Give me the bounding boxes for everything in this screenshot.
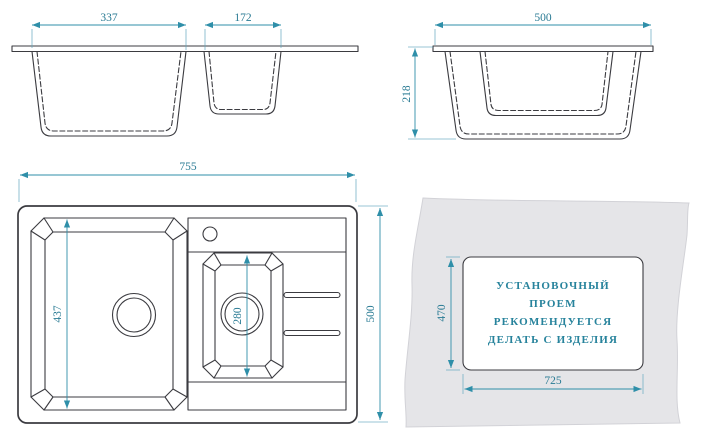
drainboard-groove-bottom	[284, 331, 340, 336]
drawing-canvas: 337 172 500 218	[0, 0, 701, 441]
shallow-bowl-profile	[480, 52, 613, 116]
large-bowl-inner-profile	[37, 52, 181, 132]
dim-sink-depth: 218	[401, 47, 456, 139]
large-drain-hole	[113, 294, 156, 337]
dim-sink-depth-value: 218	[401, 85, 413, 103]
dim-overall-width-value: 500	[365, 305, 377, 323]
dim-bowl1-width: 337	[32, 12, 186, 50]
dim-overall-length-value: 755	[179, 161, 197, 173]
note-line-1: УСТАНОВОЧНЫЙ	[496, 280, 610, 292]
dim-large-bowl-length: 437	[52, 220, 67, 409]
right-section-frame	[188, 218, 346, 410]
note-line-2: ПРОЕМ	[529, 298, 577, 310]
dim-opening-height-value: 470	[436, 304, 448, 322]
installation-opening	[463, 257, 643, 370]
sink-drawing-sheet: 337 172 500 218	[0, 0, 701, 441]
dim-sink-width-value: 500	[534, 12, 552, 24]
cutout-view: УСТАНОВОЧНЫЙ ПРОЕМ РЕКОМЕНДУЕТСЯ ДЕЛАТЬ …	[405, 198, 689, 427]
small-bowl-profile	[204, 52, 281, 115]
large-bowl-profile	[32, 52, 186, 137]
dim-bowl2-width-value: 172	[234, 12, 252, 24]
dim-overall-width: 500	[358, 206, 388, 422]
dim-bowl2-width: 172	[205, 12, 281, 50]
front-section-view: 337 172	[12, 12, 358, 136]
large-bowl-bottom-edge	[45, 232, 173, 397]
dim-opening-width-value: 725	[544, 375, 562, 387]
small-bowl-inner-profile	[209, 52, 276, 110]
dim-large-bowl-length-value: 437	[52, 305, 64, 323]
dim-sink-width: 500	[435, 12, 651, 45]
dim-bowl1-width-value: 337	[100, 12, 118, 24]
countertop-section	[12, 46, 358, 52]
dim-small-bowl-length: 280	[232, 256, 247, 377]
dim-small-bowl-length-value: 280	[232, 307, 244, 325]
note-line-3: РЕКОМЕНДУЕТСЯ	[494, 316, 613, 328]
side-section-view: 500 218	[401, 12, 653, 139]
top-view: 755 500 437 280	[18, 161, 388, 423]
large-drain-hole-inner	[117, 298, 151, 332]
countertop-section-side	[433, 46, 653, 52]
faucet-hole	[203, 227, 217, 241]
note-line-4: ДЕЛАТЬ С ИЗДЕЛИЯ	[488, 334, 618, 346]
drainboard-groove-top	[284, 293, 340, 298]
dim-overall-length: 755	[19, 161, 356, 202]
shallow-bowl-inner-profile	[485, 52, 608, 111]
